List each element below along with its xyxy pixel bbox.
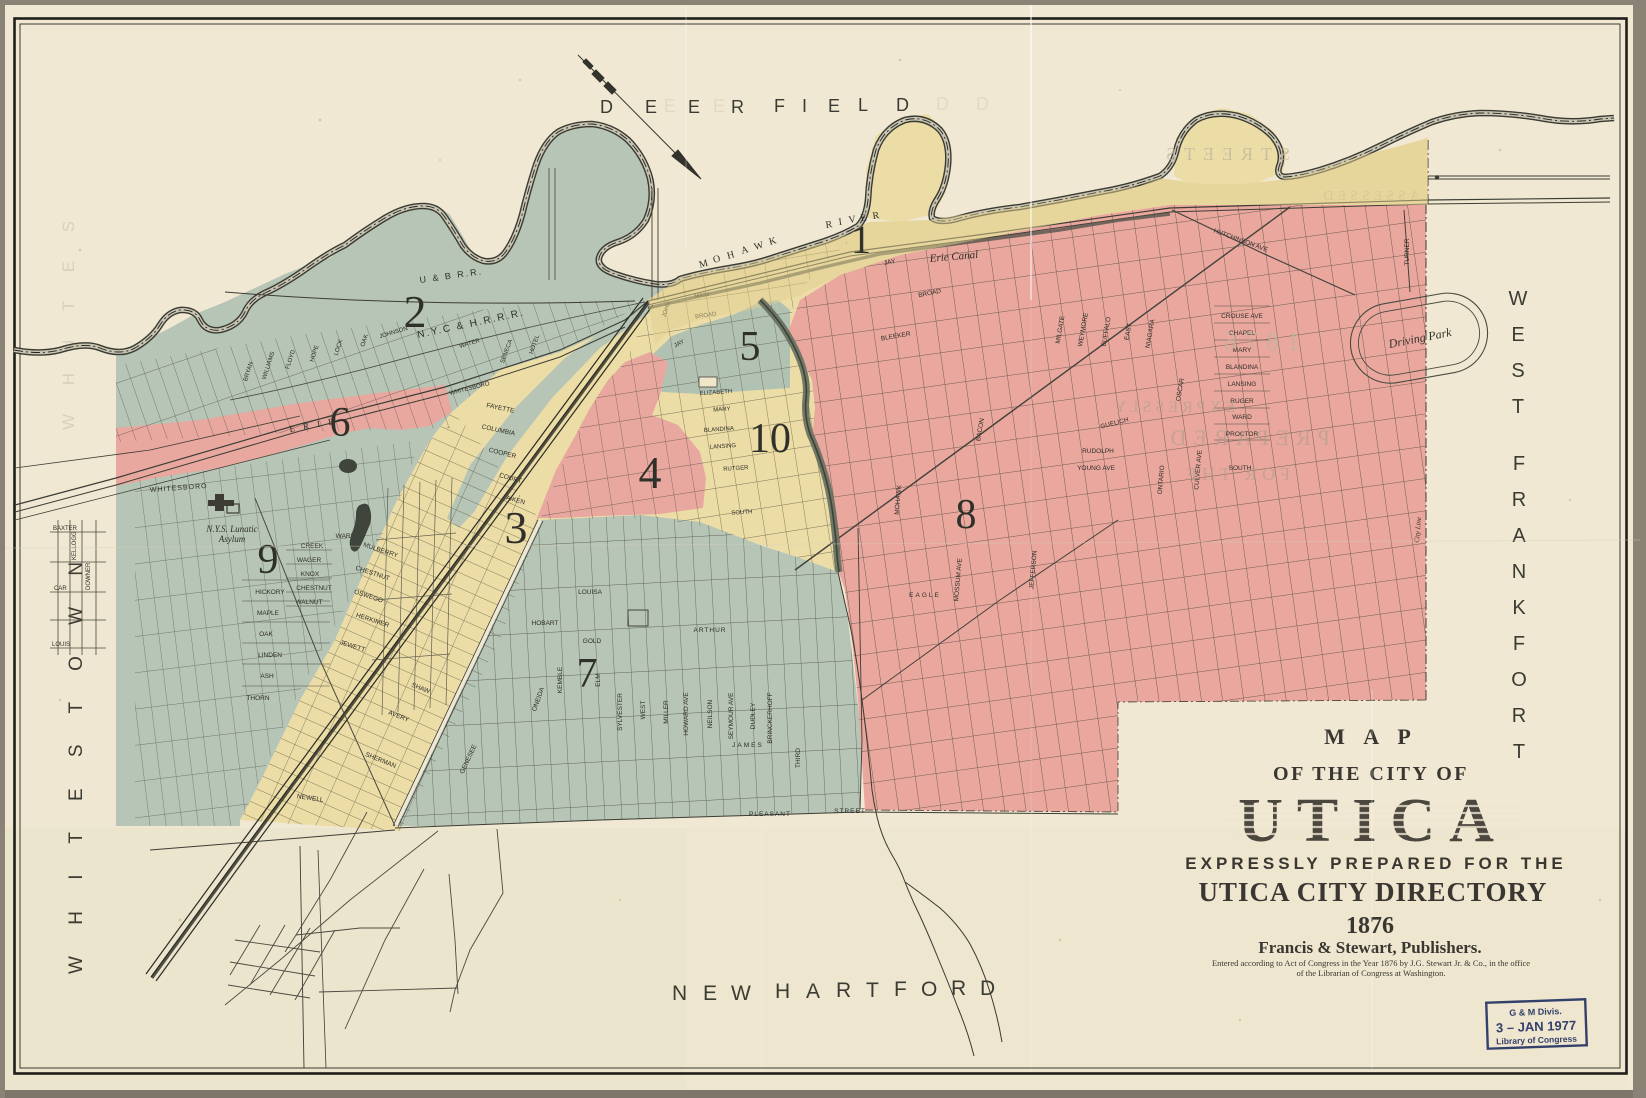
svg-text:PLEASANT: PLEASANT [749,811,791,818]
svg-text:EAGLE: EAGLE [909,592,941,599]
svg-text:STREETS: STREETS [1158,144,1290,164]
svg-text:4: 4 [639,447,662,498]
svg-text:1876: 1876 [1346,913,1394,939]
svg-text:T: T [1513,741,1525,763]
svg-text:KELLOGG: KELLOGG [72,531,78,560]
svg-text:F: F [894,978,907,1001]
svg-text:S: S [1511,360,1524,382]
svg-text:E: E [828,96,840,116]
svg-text:W: W [1509,288,1528,310]
svg-text:WAGER: WAGER [297,557,322,564]
svg-text:9: 9 [258,537,279,583]
svg-text:KEMBLE: KEMBLE [557,666,564,693]
svg-text:UTICA CITY DIRECTORY: UTICA CITY DIRECTORY [1198,877,1547,907]
svg-text:CROUSE AVE: CROUSE AVE [1221,313,1263,320]
svg-text:D: D [980,977,995,1000]
svg-text:HICKORY: HICKORY [255,589,285,596]
svg-text:F: F [1513,633,1525,655]
svg-text:I: I [802,96,807,116]
svg-text:BLANDINA: BLANDINA [1226,364,1259,371]
svg-text:1876: 1876 [1216,327,1300,356]
svg-text:THIRD: THIRD [795,748,802,768]
svg-text:R: R [1512,705,1526,727]
svg-text:L: L [858,95,868,115]
svg-text:A: A [806,980,820,1003]
svg-text:CHESTNUT: CHESTNUT [296,585,331,592]
svg-text:W H I T E S T O W N: W H I T E S T O W N [66,549,87,974]
svg-text:CAR: CAR [54,586,67,592]
svg-text:K: K [1512,597,1526,619]
svg-text:YOUNG AVE: YOUNG AVE [1077,465,1115,472]
svg-text:D: D [600,97,613,117]
svg-text:OAK: OAK [259,631,273,638]
svg-text:R: R [951,977,966,1000]
svg-text:N: N [672,982,687,1005]
svg-text:T: T [1512,396,1524,418]
svg-text:LOUIS: LOUIS [52,642,70,648]
svg-text:EXPRESSLY PREPARED FOR THE: EXPRESSLY PREPARED FOR THE [1185,854,1566,873]
svg-text:HOWARD AVE: HOWARD AVE [683,692,690,736]
svg-text:E: E [703,982,717,1005]
svg-text:THORN: THORN [246,695,269,702]
svg-text:5: 5 [740,324,761,370]
svg-text:STREET: STREET [834,808,866,815]
svg-text:TURNER: TURNER [1404,238,1411,265]
svg-text:10: 10 [749,416,791,462]
svg-text:E: E [713,96,725,116]
svg-text:N.Y.S. Lunatic: N.Y.S. Lunatic [205,524,257,534]
svg-text:MILLER: MILLER [663,700,670,724]
svg-text:MAPLE: MAPLE [257,610,280,617]
svg-text:DUDLEY: DUDLEY [750,702,757,729]
svg-text:D: D [896,95,909,115]
svg-text:LINDEN: LINDEN [258,652,282,659]
svg-text:E: E [688,97,700,117]
svg-text:SEYMOUR AVE: SEYMOUR AVE [728,692,735,740]
svg-text:O: O [1511,669,1527,691]
svg-text:WALNUT: WALNUT [295,599,322,606]
svg-text:H: H [775,980,790,1003]
svg-text:OF THE CITY OF: OF THE CITY OF [1273,763,1469,785]
svg-text:G & M Divis.: G & M Divis. [1509,1006,1562,1018]
svg-text:R: R [1512,489,1526,511]
svg-text:E: E [1511,324,1524,346]
svg-text:RUDOLPH: RUDOLPH [1082,448,1114,455]
svg-text:Francis & Stewart, Publishers.: Francis & Stewart, Publishers. [1258,938,1481,957]
svg-text:BAXTER: BAXTER [53,526,78,532]
svg-text:DOWNER: DOWNER [86,562,92,590]
svg-text:O: O [921,978,937,1001]
svg-text:8: 8 [956,492,977,538]
svg-text:W: W [731,982,751,1005]
svg-text:D: D [936,94,949,114]
svg-text:BRINCKERHOFF: BRINCKERHOFF [767,692,774,743]
svg-text:WEST: WEST [640,701,647,720]
svg-text:ARTHUR: ARTHUR [694,627,727,634]
svg-text:FOR THE: FOR THE [1181,464,1290,484]
svg-text:R: R [731,97,744,117]
svg-text:LANSING: LANSING [1228,381,1257,388]
svg-text:JAMES: JAMES [732,742,764,749]
svg-text:R: R [836,979,851,1002]
svg-text:GOLD: GOLD [583,638,602,645]
svg-text:ASH: ASH [260,673,274,680]
svg-text:3 – JAN 1977: 3 – JAN 1977 [1496,1018,1577,1036]
svg-text:MARY: MARY [713,406,731,413]
svg-text:NEILSON: NEILSON [707,699,714,728]
svg-text:of the Librarian of Congress a: of the Librarian of Congress at Washingt… [1296,968,1445,978]
svg-text:Entered according to Act of Co: Entered according to Act of Congress in … [1212,958,1530,968]
svg-text:PREPARED: PREPARED [1164,425,1330,450]
svg-text:KNOX: KNOX [301,571,320,578]
svg-text:M A P: M A P [1324,724,1418,749]
svg-text:E: E [645,97,657,117]
svg-text:T: T [866,979,879,1002]
svg-text:W H I T E S: W H I T E S [59,209,78,430]
svg-text:EXPRESSLY: EXPRESSLY [1111,399,1235,416]
svg-text:7: 7 [577,651,598,697]
svg-text:Asylum: Asylum [218,534,246,544]
svg-text:SYLVESTER: SYLVESTER [617,693,624,731]
svg-text:F: F [1513,453,1525,475]
svg-text:F: F [774,96,785,116]
svg-text:A: A [1512,525,1526,547]
svg-text:D: D [976,94,989,114]
svg-text:LOUISA: LOUISA [578,589,603,596]
svg-text:HOBART: HOBART [532,620,559,627]
svg-text:N: N [1512,561,1526,583]
svg-text:E: E [664,96,676,116]
